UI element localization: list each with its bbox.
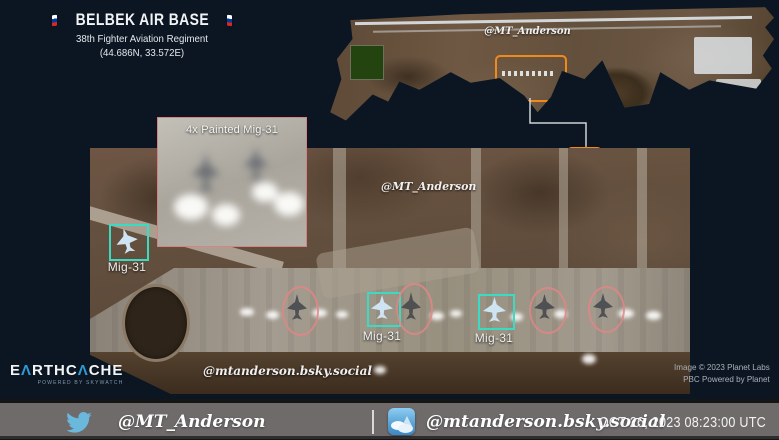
watermark-text: @MT_Anderson bbox=[381, 180, 476, 193]
ground-structure bbox=[374, 366, 386, 374]
green-field-patch bbox=[350, 45, 384, 80]
aircraft-blob bbox=[240, 308, 254, 316]
callout-highlight-box bbox=[495, 55, 567, 102]
watermark-text: @MT_Anderson bbox=[484, 26, 571, 37]
dark-terrain-patch bbox=[578, 67, 654, 119]
aircraft-blob bbox=[450, 310, 462, 317]
earthcache-logo: EΛRTHCΛCHE POWERED BY SKYWATCH bbox=[10, 362, 123, 386]
inset-blur-layer bbox=[158, 118, 306, 246]
mig31-label: Mig-31 bbox=[97, 260, 157, 274]
mig31-annotation-box bbox=[478, 294, 515, 330]
overview-satellite-image: @MT_Anderson bbox=[328, 6, 774, 124]
regiment-subtitle: 38th Fighter Aviation Regiment bbox=[59, 33, 225, 45]
twitter-handle: @MT_Anderson bbox=[118, 412, 265, 432]
painted-mig31-ellipse bbox=[588, 286, 625, 333]
footer: @MT_Anderson @mtanderson.bsky.social OCT… bbox=[0, 399, 779, 440]
watermark-text: @mtanderson.bsky.social bbox=[203, 364, 372, 378]
russian-flag-icon bbox=[227, 14, 232, 25]
aircraft-blob bbox=[646, 311, 661, 320]
footer-bar: @MT_Anderson @mtanderson.bsky.social OCT… bbox=[0, 403, 779, 439]
bluesky-icon-art bbox=[398, 424, 413, 433]
ground-structure bbox=[582, 354, 596, 364]
coordinates-text: (44.686N, 33.572E) bbox=[59, 47, 225, 59]
mig31-label: Mig-31 bbox=[464, 331, 524, 345]
painted-mig31-ellipse bbox=[282, 286, 319, 336]
runway-strip bbox=[355, 16, 752, 25]
zoom-inset-image: 4x Painted Mig-31 bbox=[157, 117, 307, 247]
header-block: BELBEK AIR BASE 38th Fighter Aviation Re… bbox=[52, 10, 232, 59]
vertical-taxiway bbox=[559, 148, 568, 278]
aircraft-blob bbox=[336, 311, 348, 318]
capture-timestamp: OCT 26, 2023 08:23:00 UTC bbox=[599, 414, 766, 431]
earthcache-wordmark: EΛRTHCΛCHE bbox=[10, 362, 123, 379]
credit-line1: Image © 2023 Planet Labs bbox=[674, 361, 770, 373]
belbek-airbase-graphic: BELBEK AIR BASE 38th Fighter Aviation Re… bbox=[0, 0, 779, 440]
painted-mig31-silhouette bbox=[244, 146, 268, 184]
revetment-circle bbox=[122, 284, 190, 362]
bright-return-blob bbox=[212, 204, 240, 226]
mig31-label: Mig-31 bbox=[352, 329, 412, 343]
page-title: BELBEK AIR BASE bbox=[75, 10, 208, 30]
painted-mig31-ellipse bbox=[529, 287, 567, 334]
credit-line2: PBC Powered by Planet bbox=[674, 373, 770, 385]
painted-mig31-silhouette bbox=[192, 152, 220, 196]
inset-caption: 4x Painted Mig-31 bbox=[158, 124, 306, 136]
aircraft-blob bbox=[266, 311, 279, 319]
mig31-annotation-box bbox=[109, 224, 149, 261]
bright-return-blob bbox=[174, 194, 208, 220]
apron-area bbox=[694, 37, 752, 75]
vertical-taxiway bbox=[637, 148, 647, 276]
footer-divider bbox=[372, 410, 374, 434]
earthcache-tagline: POWERED BY SKYWATCH bbox=[10, 380, 123, 386]
russian-flag-icon bbox=[52, 14, 57, 25]
twitter-icon bbox=[64, 412, 92, 435]
apron-area bbox=[716, 79, 761, 103]
stylized-a-glyph: Λ bbox=[78, 362, 89, 379]
bright-return-blob bbox=[274, 192, 304, 216]
stylized-a-glyph: Λ bbox=[21, 362, 32, 379]
painted-mig31-ellipse bbox=[396, 283, 433, 335]
image-credit: Image © 2023 Planet Labs PBC Powered by … bbox=[674, 361, 770, 386]
title-row: BELBEK AIR BASE bbox=[52, 10, 232, 30]
bluesky-icon bbox=[388, 408, 415, 435]
lower-terrain bbox=[90, 352, 690, 394]
